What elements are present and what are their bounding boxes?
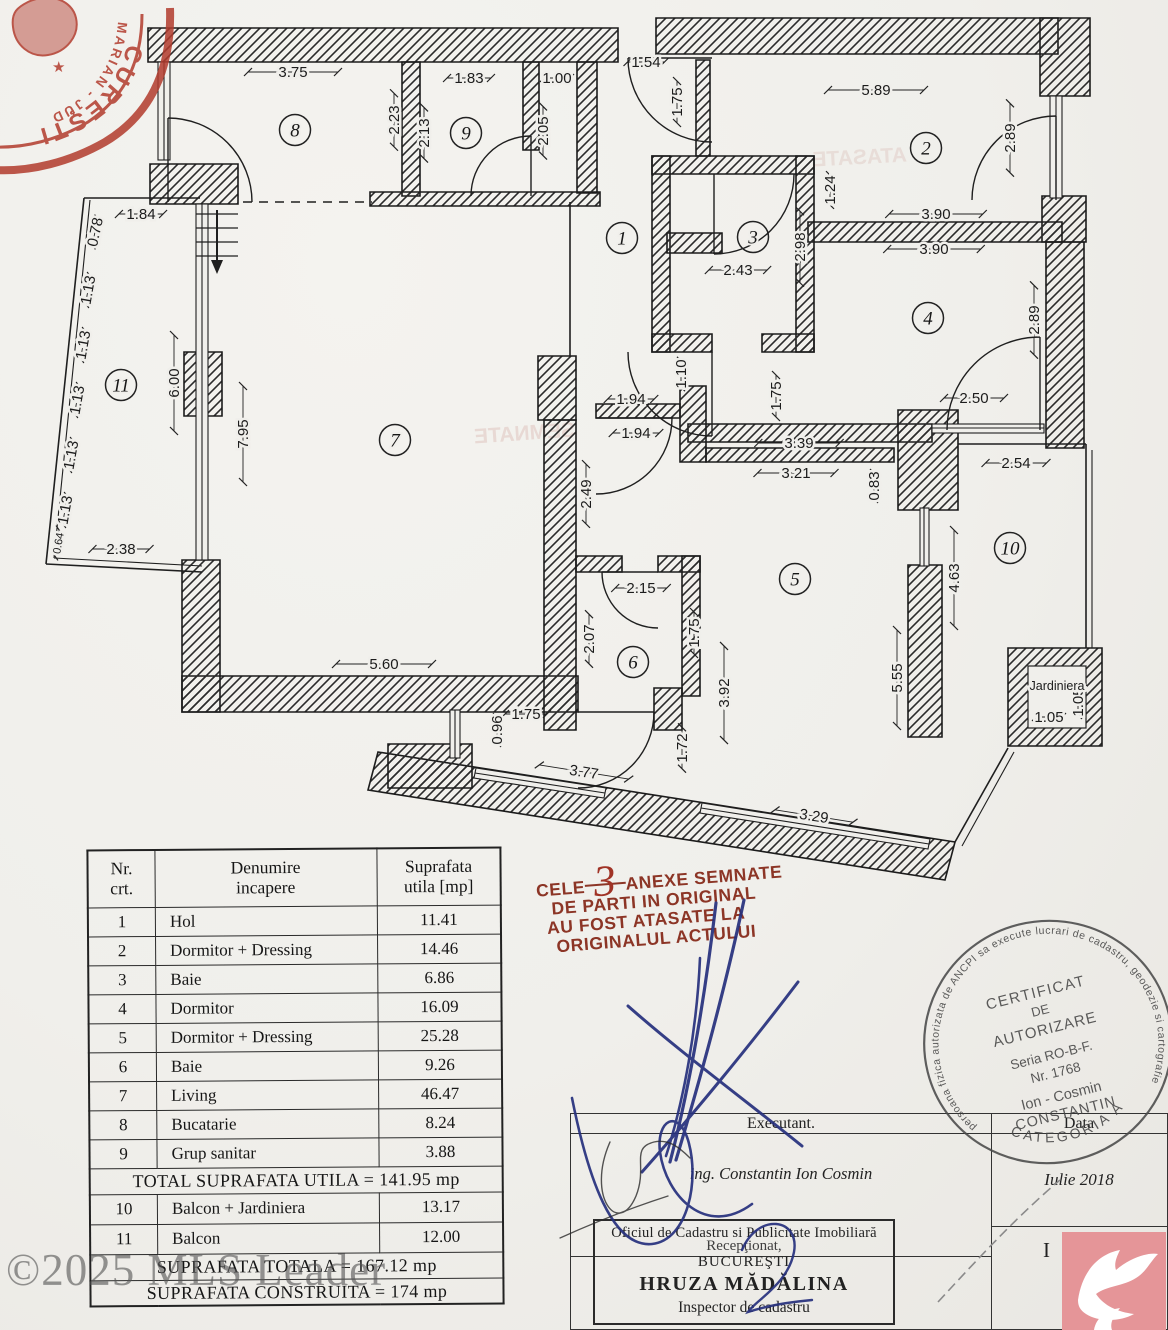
svg-text:1.83: 1.83 [454,70,483,87]
svg-text:6.00: 6.00 [166,368,183,397]
agency-logo [1062,1232,1166,1330]
dimension-label: 1.83 [443,70,495,87]
dimension-label: 3.21 [753,465,838,482]
col-header-nr: Nr. crt. [87,850,155,907]
room-number-bubble: 10 [995,533,1026,564]
wall [652,156,670,352]
svg-text:2.38: 2.38 [106,541,135,558]
dimension-label: 1.10 [673,357,690,391]
svg-text:1.13: 1.13 [78,274,100,306]
room-area: 9.26 [378,1050,502,1080]
dimension-label: 1.13 [54,491,77,529]
stamp-eagle [13,0,77,55]
svg-text:1.75: 1.75 [686,618,703,647]
table-row: 8Bucatarie8.24 [89,1108,502,1140]
inspector-name: HRUZA MĂDĂLINA [595,1273,893,1296]
svg-text:2.23: 2.23 [386,105,403,134]
svg-text:9: 9 [461,124,471,145]
room-area: 25.28 [378,1021,502,1051]
notary-stamp: MARIAN - JUD CUREŞTI ★ [0,0,170,170]
row-number: 2 [88,936,156,965]
room-area: 3.88 [379,1137,503,1167]
dimension-label: 3.90 [885,206,987,223]
dimension-label: 2.89 [1002,99,1019,176]
room-name: Grup sanitar [157,1137,379,1168]
svg-text:2.54: 2.54 [1001,455,1030,472]
svg-text:1: 1 [617,229,627,250]
stamp-text-large: CUREŞTI [34,42,148,150]
svg-text:1.13: 1.13 [67,384,89,416]
walls [148,18,1102,880]
dimension-label: 1.75 [669,77,686,127]
dimension-label: 6.00 [166,331,183,435]
svg-text:1.75: 1.75 [511,706,540,723]
row-number: 3 [88,965,156,994]
wall [576,556,622,572]
total-utila: TOTAL SUPRAFATA UTILA = 141.95 mp [90,1166,503,1195]
svg-text:5.89: 5.89 [861,82,890,99]
svg-text:2.89: 2.89 [1026,305,1043,334]
room-area: 11.41 [377,905,501,935]
svg-text:2.07: 2.07 [581,624,598,653]
dimension-label: 5.60 [332,656,436,673]
room-number-bubble: 5 [780,564,811,595]
dimension-label: 3.75 [244,64,342,81]
room-number-bubble: 2 [911,133,942,164]
svg-text:2.50: 2.50 [959,390,988,407]
dimension-label: 2.23 [386,89,403,151]
room-name: Balcon + Jardiniera [157,1192,379,1224]
dimension-label: 4.63 [946,526,963,630]
inspector-title: Inspector de cadastru [595,1299,893,1317]
svg-text:3.90: 3.90 [919,241,948,258]
divider [991,1226,1167,1227]
dimension-label: 1.84 [115,206,167,223]
table-row: 4Dormitor16.09 [88,992,501,1024]
dimension-label: 0.96 [489,713,506,747]
svg-text:3.39: 3.39 [784,435,813,452]
svg-text:2: 2 [921,139,931,160]
row-number: 4 [88,994,156,1023]
window [196,204,208,560]
dimension-label: 3.92 [716,642,733,744]
wall [182,560,220,712]
dimension-label: 1.13 [72,326,95,364]
dimension-label: 1.24 [822,171,839,209]
row-number: 1 [88,907,156,936]
svg-text:8: 8 [290,121,300,142]
room-name: Bucatarie [157,1108,379,1139]
svg-text:2.15: 2.15 [626,580,655,597]
wall [656,18,1058,54]
room-area: 8.24 [379,1108,503,1138]
authorization-stamp: persoana fizica autorizata de ANCPI sa e… [918,912,1168,1176]
watermark: ©2025 MLS Leader [6,1244,386,1296]
wall [652,334,712,352]
table-row: 6Baie9.26 [89,1050,502,1082]
svg-text:3.21: 3.21 [781,465,810,482]
door-arc [947,337,1040,430]
reception-stamp-box: Oficiul de Cadastru si Publicitate Imobi… [593,1219,895,1325]
office-line2: BUCUREŞTI [595,1254,893,1271]
dimension-label: 1.13 [60,436,83,474]
dimension-label: 3.90 [883,241,985,258]
svg-text:1.94: 1.94 [621,425,650,442]
table-row: 7Living46.47 [89,1079,502,1111]
svg-text:3: 3 [747,228,758,249]
room-number-bubble: 9 [451,118,482,149]
dimension-label: 1.13 [66,381,89,419]
room-area: 16.09 [378,992,502,1022]
row-number: 10 [90,1194,158,1224]
svg-text:1.75: 1.75 [768,381,785,410]
wall [908,565,942,737]
svg-text:1.10: 1.10 [673,359,690,388]
partial-letter: I [1043,1238,1050,1263]
svg-text:1.72: 1.72 [674,733,691,762]
svg-text:5.60: 5.60 [369,656,398,673]
room-area: 6.86 [378,963,502,993]
table-header-row: Nr. crt. Denumire incapere Suprafata uti… [87,848,500,908]
wall [1040,18,1090,96]
col-header-suprafata: Suprafata utila [mp] [377,848,501,906]
dimension-label: 1.05 [1032,709,1066,726]
room-area: 46.47 [379,1079,503,1109]
window [450,710,460,758]
room-number-bubble: 4 [913,303,944,334]
svg-text:11: 11 [112,376,130,397]
arrow-down-icon [211,260,223,274]
wall [652,156,814,174]
row-number: 6 [89,1052,157,1081]
svg-text:1.84: 1.84 [126,206,155,223]
col-header-denumire: Denumire incapere [155,848,377,907]
row-number: 8 [89,1110,157,1139]
room-name: Hol [155,905,377,936]
wall [577,62,597,193]
svg-text:0.83: 0.83 [866,471,883,500]
scanned-cadastral-sheet: SEMNATE ATASATE [0,0,1168,1330]
room-name: Dormitor [156,992,378,1023]
room-name: Dormitor + Dressing [156,1021,378,1052]
wall [808,222,1062,242]
row-number: 9 [89,1139,157,1168]
dimension-label: 5.55 [889,626,906,730]
room-number-bubble: 1 [607,223,638,254]
room-name: Baie [156,1050,378,1081]
svg-text:2.49: 2.49 [578,479,595,508]
room-number-bubble: 6 [618,647,649,678]
table-row: 2Dormitor + Dressing14.46 [88,934,501,966]
svg-text:1.54: 1.54 [631,54,660,71]
svg-text:1.24: 1.24 [822,175,839,204]
svg-text:10: 10 [1001,539,1021,560]
dimension-label: 1.54 [624,54,669,71]
svg-text:ATASATE: ATASATE [812,144,908,172]
row-number: 5 [89,1023,157,1052]
wall [538,356,576,420]
room-number-bubble: 8 [280,115,311,146]
dimension-label: 0.83 [866,469,883,503]
dimension-label: 1.13 [77,271,100,309]
room-name: Living [157,1079,379,1110]
dimension-label: 2.49 [578,460,595,528]
svg-text:2.13: 2.13 [416,118,433,147]
table-row: 9Grup sanitar3.88 [89,1137,502,1169]
door-arc [471,136,531,196]
svg-text:5.55: 5.55 [889,663,906,692]
wall [1046,242,1084,448]
room-number-bubble: 11 [106,370,137,401]
svg-text:CUREŞTI: CUREŞTI [34,42,148,150]
dimension-label: 0.78 [84,214,108,251]
svg-text:0.64: 0.64 [51,532,67,555]
table-row: 10Balcon + Jardiniera13.17 [90,1192,503,1225]
svg-text:5: 5 [790,570,800,591]
dimension-label: 2.43 [705,262,771,279]
svg-text:1.00: 1.00 [542,70,571,87]
note-handwritten-count: 3 [585,880,626,887]
svg-text:2.43: 2.43 [723,262,752,279]
stamp-star-icon: ★ [52,59,65,76]
dimension-label: 0.64 [50,526,68,562]
table-row: 5Dormitor + Dressing25.28 [89,1021,502,1053]
room-area: 13.17 [379,1192,503,1223]
svg-text:3.90: 3.90 [921,206,950,223]
svg-text:2.05: 2.05 [535,116,552,145]
svg-text:3.77: 3.77 [568,762,600,783]
wall [680,386,706,462]
table-row: 1Hol11.41 [88,905,501,937]
svg-text:1.13: 1.13 [61,439,83,471]
room-name: Baie [156,963,378,994]
table-total-row: TOTAL SUPRAFATA UTILA = 141.95 mp [90,1166,503,1195]
window [920,508,929,566]
wall [370,192,600,206]
svg-text:3.92: 3.92 [716,678,733,707]
row-number: 7 [89,1081,157,1110]
svg-text:1.13: 1.13 [73,329,95,361]
svg-text:0.96: 0.96 [489,715,506,744]
dimension-label: 2.38 [88,541,153,558]
svg-text:2.98: 2.98 [792,232,809,261]
room-number-bubble: 7 [380,425,411,456]
svg-text:3.75: 3.75 [278,64,307,81]
dimension-label: 1.94 [609,425,664,442]
dimension-label: 1.75 [768,371,785,421]
executant-name: ing. Constantin Ion Cosmin [631,1164,931,1184]
wall [762,334,814,352]
room-name: Dormitor + Dressing [156,934,378,965]
window [932,424,1044,433]
area-table: Nr. crt. Denumire incapere Suprafata uti… [86,847,504,1308]
svg-text:1.13: 1.13 [55,494,77,526]
svg-text:1.75: 1.75 [669,87,686,116]
floor-plan: SEMNATE ATASATE [0,0,1168,900]
receptionat-label: Recepţionat, [595,1238,893,1255]
svg-text:1.05: 1.05 [1034,709,1063,726]
cert-line: DE [1030,1001,1051,1020]
svg-text:6: 6 [628,653,638,674]
executant-label: Executant. [631,1115,931,1133]
dimension-label: 1.00 [540,70,574,87]
svg-text:1.94: 1.94 [616,391,645,408]
svg-text:7: 7 [390,431,401,452]
dimension-label: 2.07 [581,610,598,668]
room-area: 12.00 [380,1222,504,1253]
jardiniera-label: Jardiniera [1030,679,1085,693]
dimension-label: 7.95 [235,382,252,486]
wall [544,420,576,730]
dimension-label: 2.15 [611,580,671,597]
dimension-label: 5.89 [824,82,928,99]
svg-text:4: 4 [923,309,933,330]
svg-text:2.89: 2.89 [1002,123,1019,152]
room-area: 14.46 [378,934,502,964]
dimension-label: 2.54 [982,455,1051,472]
svg-text:4.63: 4.63 [946,563,963,592]
svg-text:7.95: 7.95 [235,419,252,448]
table-row: 3Baie6.86 [88,963,501,995]
wall [148,28,618,62]
